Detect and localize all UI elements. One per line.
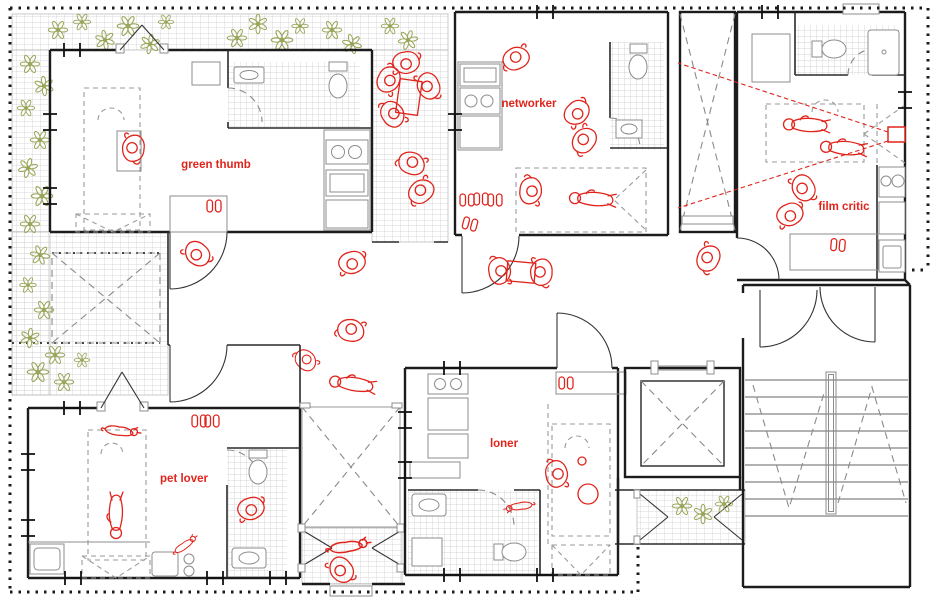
rug [170,196,227,232]
kitchen-fixtures [458,62,502,150]
cup [578,457,586,465]
unit-loner: loner [398,313,626,582]
slippers-icon [462,216,479,231]
toilet [822,40,846,58]
toilet [502,543,526,561]
entry-door [737,238,779,280]
rug [790,234,878,270]
person-figure [518,174,544,206]
kitchen-fixtures [28,542,194,576]
stairwell [743,280,910,587]
slippers-icon [831,238,846,251]
person-figure [559,95,595,130]
entry-door [462,236,519,293]
stool [578,484,598,504]
void-shaft [300,403,402,527]
person-figure [691,241,724,277]
wardrobe [552,545,610,575]
washer [192,62,220,85]
elevator [625,361,740,477]
toilet [329,74,347,98]
person-figure [290,344,320,375]
slippers-icon [205,415,219,427]
room-label-film-critic: film critic [818,201,870,213]
person-figure [783,115,830,133]
person-figure [788,171,820,206]
slippers-icon [474,193,488,205]
kitchen-fixtures [324,130,370,230]
person-figure [336,249,369,276]
person-figure [569,189,616,207]
toilet [629,55,647,79]
floor-plan-svg: green thumb [0,0,940,608]
person-figure [334,317,367,344]
bed [766,100,905,165]
floor-plan: green thumb [0,0,940,608]
slippers-icon [488,194,502,206]
projection-beam [678,63,888,208]
person-figure [820,137,868,156]
entrance-vestibule [298,524,405,596]
slippers-icon [192,415,206,427]
person-figure [107,492,123,539]
entry-door [170,345,227,402]
entry-door [170,232,227,289]
toilet [249,460,267,484]
rear-corridor [615,477,745,544]
room-label-green-thumb: green thumb [181,159,251,171]
wardrobe [752,34,790,82]
slippers-icon [460,194,474,206]
room-label-networker: networker [502,98,557,110]
stair-railing [826,372,836,514]
bed [516,168,646,232]
wardrobe [76,214,150,232]
person-figure [180,236,216,272]
entry-door [557,313,612,368]
room-label-pet-lover: pet lover [160,473,208,485]
rug [556,372,626,394]
shower [868,30,899,75]
tv-projector [888,127,905,142]
room-label-loner: loner [490,438,519,450]
wardrobe [82,556,150,578]
slippers-icon [559,377,573,389]
person-figure [773,199,808,229]
bed [548,404,610,545]
person-figure [498,43,533,73]
kitchen-fixtures [410,374,468,478]
unit-networker: networker [448,5,668,293]
stair-doors [760,287,875,347]
person-figure [329,372,377,394]
person-figure [120,133,146,165]
slippers-icon [207,200,221,212]
kitchen-fixtures [877,165,905,280]
bed [84,88,140,230]
